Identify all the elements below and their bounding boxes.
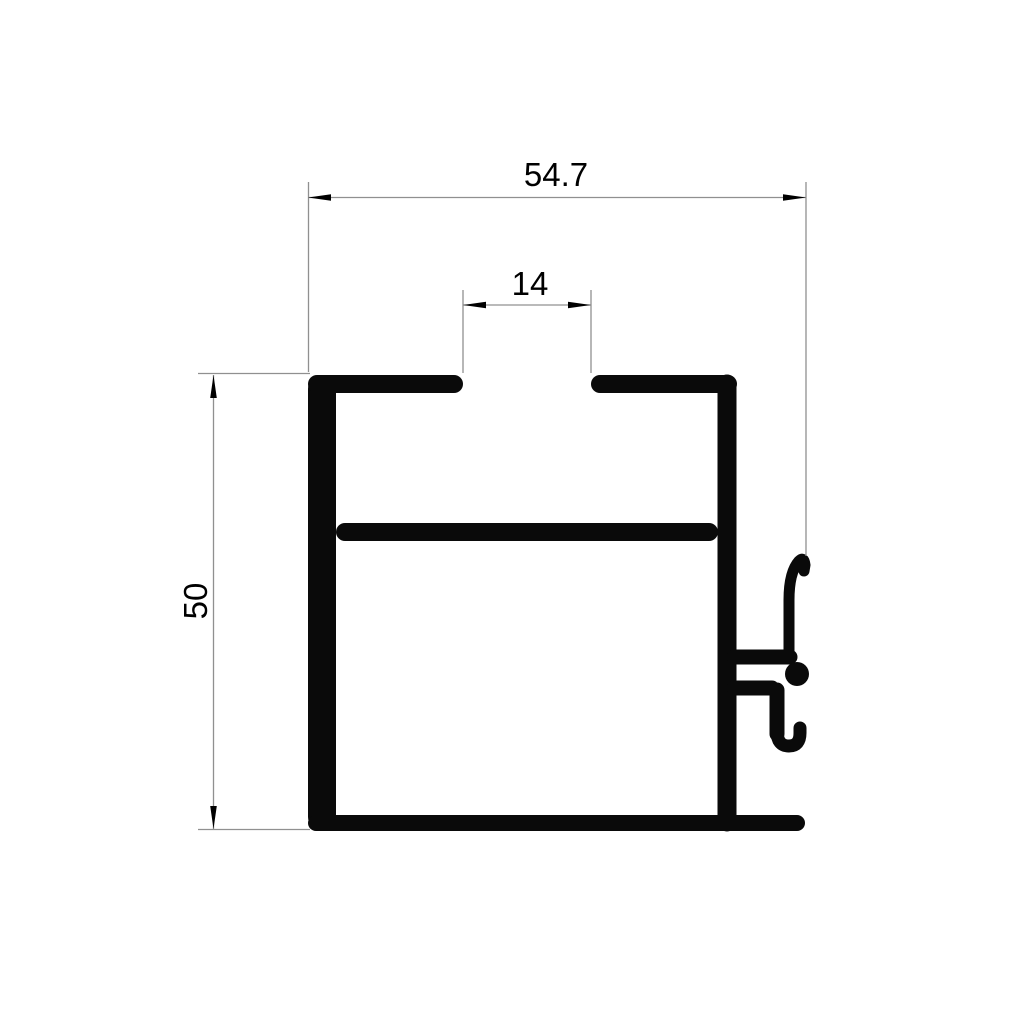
dimension-label-height: 50 xyxy=(177,583,214,620)
dimension-label-width: 54.7 xyxy=(524,156,588,193)
technical-drawing: 54.7 14 50 xyxy=(0,0,1024,1024)
profile-right-lug xyxy=(785,662,809,686)
drawing-canvas: 54.7 14 50 xyxy=(0,0,1024,1024)
dimension-label-slot: 14 xyxy=(512,265,549,302)
drawing-background xyxy=(0,0,1024,1024)
